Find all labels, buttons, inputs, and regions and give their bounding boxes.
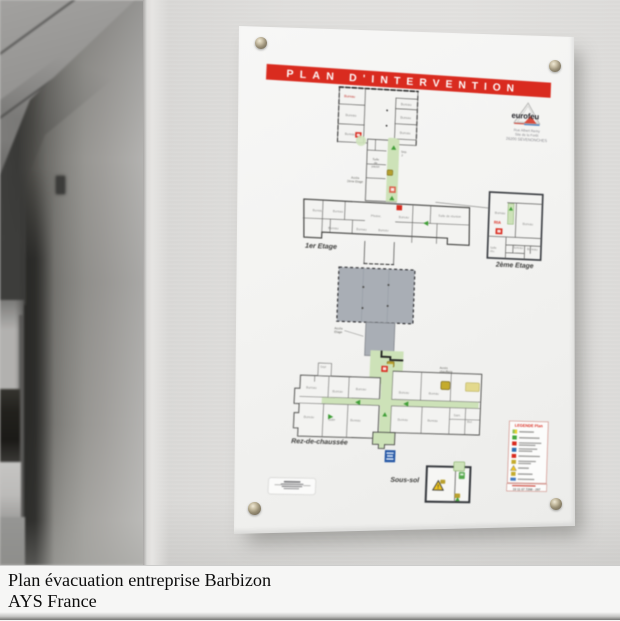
svg-text:Bureau: Bureau bbox=[495, 211, 506, 215]
svg-text:Bureau: Bureau bbox=[333, 209, 344, 213]
svg-text:RIA: RIA bbox=[494, 220, 501, 225]
svg-text:Bureau: Bureau bbox=[304, 415, 315, 419]
svg-text:réu.: réu. bbox=[490, 249, 495, 253]
svg-text:2: 2 bbox=[401, 153, 403, 157]
svg-text:Bureau: Bureau bbox=[345, 132, 356, 136]
svg-text:LEGENDE Plan: LEGENDE Plan bbox=[515, 423, 544, 429]
svg-text:Bureau: Bureau bbox=[522, 222, 533, 226]
svg-text:Bureau: Bureau bbox=[306, 385, 317, 389]
svg-text:Bureau: Bureau bbox=[398, 418, 409, 422]
svg-text:Bureau: Bureau bbox=[401, 102, 412, 106]
svg-text:Etage: Etage bbox=[334, 330, 342, 334]
svg-text:1er Etage: 1er Etage bbox=[305, 242, 337, 251]
svg-text:26200 SEVENONCHES: 26200 SEVENONCHES bbox=[506, 136, 548, 143]
svg-text:2ème Etage: 2ème Etage bbox=[347, 179, 364, 184]
svg-text:Bureau: Bureau bbox=[356, 387, 367, 391]
svg-text:Bureau: Bureau bbox=[332, 389, 343, 393]
svg-text:Bureau: Bureau bbox=[356, 227, 367, 231]
svg-text:Bureau: Bureau bbox=[350, 418, 361, 422]
svg-text:Rez-de-chaussée: Rez-de-chaussée bbox=[291, 438, 348, 446]
svg-text:Bureau: Bureau bbox=[312, 208, 323, 212]
svg-text:Bureau: Bureau bbox=[399, 391, 410, 395]
svg-text:pause: pause bbox=[371, 164, 380, 168]
svg-text:Bureau: Bureau bbox=[345, 113, 356, 117]
svg-text:Bureau: Bureau bbox=[527, 247, 538, 251]
svg-text:Bur.: Bur. bbox=[467, 420, 473, 424]
svg-text:2ème Etage: 2ème Etage bbox=[495, 261, 534, 270]
svg-text:Sous-sol: Sous-sol bbox=[390, 477, 420, 484]
svg-text:Sam.: Sam. bbox=[453, 413, 461, 417]
svg-text:Photoc.: Photoc. bbox=[371, 214, 382, 218]
svg-text:Salle: Salle bbox=[328, 418, 336, 422]
svg-text:Bureau: Bureau bbox=[400, 131, 411, 135]
svg-text:Bureau: Bureau bbox=[429, 392, 440, 396]
svg-text:Bureau: Bureau bbox=[399, 215, 410, 219]
svg-text:Bureau: Bureau bbox=[328, 226, 339, 230]
svg-text:eurofeu: eurofeu bbox=[511, 111, 539, 121]
svg-text:Bureau: Bureau bbox=[378, 228, 389, 232]
svg-text:chaufferie: chaufferie bbox=[439, 369, 452, 373]
svg-text:Bureau: Bureau bbox=[344, 94, 355, 98]
svg-text:Bureau: Bureau bbox=[512, 246, 523, 250]
svg-text:Bureau: Bureau bbox=[400, 116, 411, 120]
svg-text:Bureau: Bureau bbox=[427, 419, 438, 423]
svg-text:10 11 07 7288 - 297: 10 11 07 7288 - 297 bbox=[513, 487, 541, 491]
svg-text:!: ! bbox=[437, 484, 439, 491]
svg-text:Sept: Sept bbox=[320, 365, 326, 369]
